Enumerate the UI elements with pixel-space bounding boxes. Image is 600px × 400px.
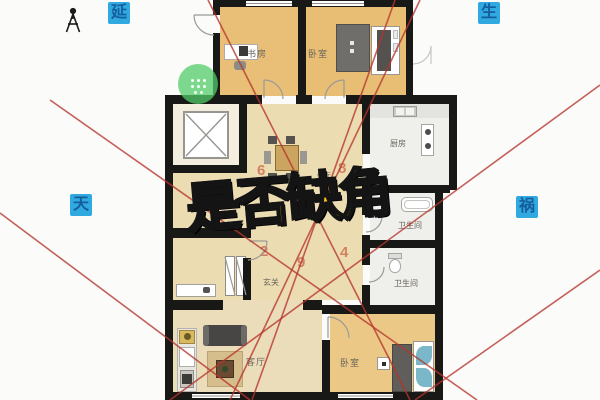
sector-number: 4: [340, 245, 348, 260]
room-floor-bathroom-lower: [370, 248, 435, 305]
nightstand-lamp: [382, 362, 386, 366]
sector-number: 9: [297, 255, 305, 270]
window: [338, 394, 393, 398]
room-label-living: 客厅: [246, 358, 266, 367]
person-icon: [62, 6, 84, 34]
room-label-bedroom-bottom: 卧室: [340, 359, 360, 368]
balcony-door-arc: [413, 46, 431, 64]
move-icon-dots: [191, 79, 194, 82]
wall: [362, 104, 370, 154]
sink-basin: [406, 108, 414, 115]
bed-blanket: [377, 30, 391, 71]
wall: [298, 0, 306, 96]
window: [246, 1, 292, 6]
wardrobe: [392, 344, 412, 392]
bed-pillow: [393, 43, 398, 52]
tv-shelf: [179, 347, 195, 367]
shoe-bench-item: [203, 287, 210, 293]
stove-burner: [425, 129, 431, 135]
wall: [172, 300, 223, 310]
direction-badge-tian: 天: [70, 194, 92, 216]
speaker-circle: [184, 333, 191, 340]
wall: [362, 285, 370, 305]
wall: [213, 0, 220, 15]
wardrobe-handle: [350, 41, 354, 45]
room-floor-elevator: [173, 104, 239, 165]
direction-badge-yan: 延: [108, 2, 130, 24]
bed-pillow: [393, 30, 398, 39]
sink-basin: [396, 108, 404, 115]
room-label-bathroom-upper: 卫生间: [398, 222, 422, 230]
direction-badge-sheng: 生: [478, 2, 500, 24]
sofa-arm: [241, 325, 247, 346]
dining-chair: [268, 136, 277, 144]
sofa-arm: [203, 325, 209, 346]
room-label-study: 书房: [247, 50, 267, 59]
wall: [296, 95, 312, 104]
wall: [346, 95, 457, 104]
wall: [435, 193, 443, 392]
shoe-bench: [176, 284, 216, 297]
wall: [322, 305, 435, 314]
wall: [370, 240, 435, 248]
wall: [362, 235, 370, 265]
wall: [239, 104, 247, 172]
wardrobe: [336, 24, 370, 72]
wall: [165, 165, 247, 173]
room-label-entry: 玄关: [263, 279, 279, 287]
direction-badge-huo: 祸: [516, 196, 538, 218]
window: [192, 394, 240, 398]
dining-table: [275, 145, 299, 171]
table-plant: [222, 366, 228, 372]
room-label-kitchen: 厨房: [390, 140, 406, 148]
room-label-bedroom-top: 卧室: [308, 50, 328, 59]
sector-number: 2: [260, 244, 268, 259]
wall: [406, 0, 413, 96]
desk-chair: [234, 61, 246, 70]
window: [312, 1, 364, 6]
wall: [165, 95, 173, 400]
bed-cover-fan: [416, 368, 432, 387]
wall: [303, 300, 322, 310]
stove-burner: [425, 143, 431, 149]
closet-fold-door: [225, 256, 235, 296]
wall: [449, 95, 457, 190]
dining-bench: [300, 151, 307, 164]
toilet-bowl: [389, 259, 401, 273]
fengshui-floorplan-view: 书房 卧室 厨房 餐厅 卫生间 卫生间 玄关 客厅 卧室 6 8 2 9 4 是…: [0, 0, 600, 400]
room-label-bathroom-lower: 卫生间: [394, 280, 418, 288]
dining-chair: [286, 136, 295, 144]
wall: [322, 340, 330, 392]
wardrobe-handle: [350, 49, 354, 53]
bed-cover-fan: [416, 346, 432, 365]
tv-screen-panel: [182, 374, 192, 384]
move-icon[interactable]: [178, 64, 218, 104]
wall: [243, 258, 251, 300]
